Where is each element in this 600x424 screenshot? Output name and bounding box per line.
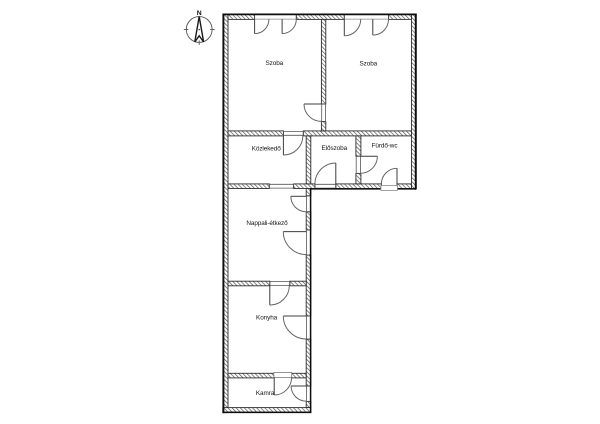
svg-text:Előszoba: Előszoba [322,145,348,152]
svg-text:Közlekedő: Közlekedő [252,145,281,152]
svg-text:Nappali-étkező: Nappali-étkező [246,220,288,227]
svg-text:N: N [197,10,202,17]
svg-text:Fürdő-wc: Fürdő-wc [372,143,399,150]
svg-text:Konyha: Konyha [256,314,278,321]
svg-text:Szoba: Szoba [265,60,283,67]
svg-text:Szoba: Szoba [359,60,377,67]
svg-text:Kamra: Kamra [256,390,275,397]
